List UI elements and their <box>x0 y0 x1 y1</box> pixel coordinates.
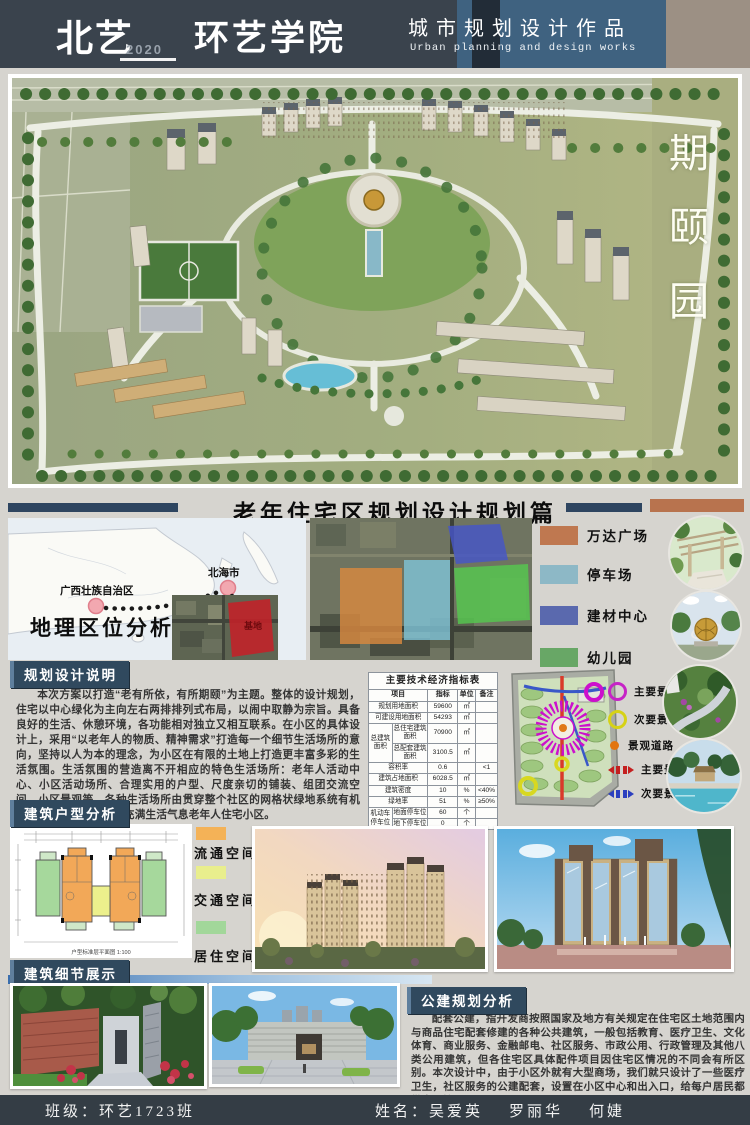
logo-underline <box>120 58 176 61</box>
rendering-day-photo <box>494 826 734 972</box>
detail-photo-entrance <box>209 983 400 1087</box>
rendering-sunset-svg <box>255 829 485 969</box>
photo-circle-pergola <box>670 517 742 589</box>
minor-scenery-ring-icon <box>608 710 627 729</box>
floorplan-caption: 户型标准层平面图 1:100 <box>71 948 130 956</box>
space-label-circulation: 流通空间 <box>194 843 258 862</box>
detail-garden-wall-svg <box>13 986 204 1086</box>
spl-label-road: 景观道路 <box>628 738 674 753</box>
aerial-rendering-image <box>12 78 738 484</box>
title-bar-right <box>566 503 642 512</box>
legend-row-parking: 停车场 <box>540 564 649 584</box>
header-panel-tan <box>666 0 750 68</box>
satellite-map-image <box>310 518 532 660</box>
space-label-traffic: 交通空间 <box>194 890 258 909</box>
header-title-en: Urban planning and design works <box>410 42 636 54</box>
footer-names: 姓名：吴爱英罗丽华何婕 <box>375 1100 625 1121</box>
table-row: 绿地率51%≥50% <box>369 796 498 807</box>
table-row: 容积率0.6<1 <box>369 763 498 774</box>
col-note: 备注 <box>476 689 498 701</box>
hero-watermark: 期颐园 <box>656 132 714 452</box>
site-inset-svg: 基地 <box>172 595 278 660</box>
footer-name-2: 罗丽华 <box>509 1104 563 1120</box>
legend-row-materials: 建材中心 <box>540 605 649 625</box>
logo-year: 2020 <box>126 42 163 57</box>
title-bar-orange <box>650 499 744 512</box>
satellite-map-svg <box>310 518 532 660</box>
footer-name-prefix: 姓名： <box>375 1104 429 1120</box>
detail-entrance-svg <box>212 986 397 1084</box>
legend-row-kindergarten: 幼儿园 <box>540 647 649 667</box>
table-row: 建筑密度10%<40% <box>369 785 498 796</box>
scenery-road-dot-icon <box>610 741 619 750</box>
photo-circle-garden-path <box>664 666 736 738</box>
legend-swatch-kindergarten <box>540 648 578 667</box>
legend-label-wanda: 万达广场 <box>587 525 649 545</box>
geo-city-label: 北海市 <box>208 566 240 579</box>
site-inset-image: 基地 <box>172 595 278 660</box>
major-scenery-ring-icon <box>608 682 627 701</box>
overlay-parking <box>404 560 450 640</box>
indicators-table: 主要技术经济指标表 项目 指标 单位 备注 规划用地面积59600㎡ 可建设用地… <box>368 672 498 830</box>
legend-label-parking: 停车场 <box>587 564 634 584</box>
header-title-cn: 城市规划设计作品 <box>408 12 632 41</box>
table-row: 机动车停车位地面停车位60个 <box>369 807 498 818</box>
col-unit: 单位 <box>458 689 476 701</box>
minor-axis-icon <box>608 790 634 798</box>
public-body: 配套公建，指开发商按照国家及地方有关规定在住宅区土地范围内与商品住宅配套修建的各… <box>411 1013 745 1108</box>
overlay-wanda <box>340 568 402 644</box>
geo-province-label: 广西壮族自治区 <box>60 584 134 597</box>
footer-class: 班级：环艺1723班 <box>45 1100 195 1121</box>
major-axis-icon <box>608 766 634 774</box>
photo-circle-pool <box>668 740 740 812</box>
legend-swatch-wanda <box>540 526 578 545</box>
col-item: 项目 <box>369 689 428 701</box>
legend-swatch-materials <box>540 606 578 625</box>
detail-photo-garden-wall <box>10 983 207 1089</box>
footer-bar: 班级：环艺1723班 姓名：吴爱英罗丽华何婕 <box>0 1095 750 1125</box>
photo-circle-sculpture <box>672 592 740 660</box>
overlay-building-materials <box>448 524 508 564</box>
table-row: 可建设用地面积54293㎡ <box>369 712 498 723</box>
geo-city-dot <box>221 581 236 596</box>
logo-school: 环艺学院 <box>194 10 346 61</box>
space-label-living: 居住空间 <box>194 946 258 965</box>
site-label: 基地 <box>243 620 262 631</box>
sculpture-photo-svg <box>672 592 740 660</box>
overlay-kindergarten <box>454 564 530 624</box>
public-section-header: 公建规划分析 <box>407 987 526 1014</box>
unit-section-header: 建筑户型分析 <box>10 800 129 827</box>
legend-row-wanda: 万达广场 <box>540 525 649 545</box>
legend-label-kindergarten: 幼儿园 <box>587 647 634 667</box>
space-swatch-living <box>196 921 226 934</box>
legend-label-materials: 建材中心 <box>587 605 649 625</box>
space-swatch-circulation <box>196 827 226 840</box>
floorplan-image: 户型标准层平面图 1:100 <box>10 824 192 958</box>
footer-name-3: 何婕 <box>589 1104 625 1120</box>
legend-swatch-parking <box>540 565 578 584</box>
floorplan-panel: 户型标准层平面图 1:100 <box>10 824 192 958</box>
geo-title: 地理区位分析 <box>30 612 174 642</box>
space-swatch-traffic <box>196 866 226 879</box>
header-bar: 北艺 2020 环艺学院 城市规划设计作品 Urban planning and… <box>0 0 750 68</box>
garden-path-photo-svg <box>664 666 736 738</box>
footer-name-1: 吴爱英 <box>429 1104 483 1120</box>
indicators-title: 主要技术经济指标表 <box>369 673 498 690</box>
planning-section-header: 规划设计说明 <box>10 661 129 688</box>
table-row: 建筑占地面积6028.5㎡ <box>369 774 498 785</box>
table-row: 总建筑面积总住宅建筑面积70900㎡ <box>369 724 498 743</box>
landuse-legend: 万达广场 停车场 建材中心 幼儿园 <box>540 525 649 667</box>
logo-text: 北艺 <box>56 8 134 62</box>
pergola-photo-svg <box>670 517 742 589</box>
poster: 北艺 2020 环艺学院 城市规划设计作品 Urban planning and… <box>0 0 750 1125</box>
rendering-day-svg <box>497 829 731 969</box>
table-row: 规划用地面积59600㎡ <box>369 701 498 712</box>
col-value: 指标 <box>428 689 458 701</box>
pool-photo-svg <box>668 740 740 812</box>
hero-panel: 期颐园 <box>8 74 742 488</box>
rendering-sunset-photo <box>252 826 488 972</box>
